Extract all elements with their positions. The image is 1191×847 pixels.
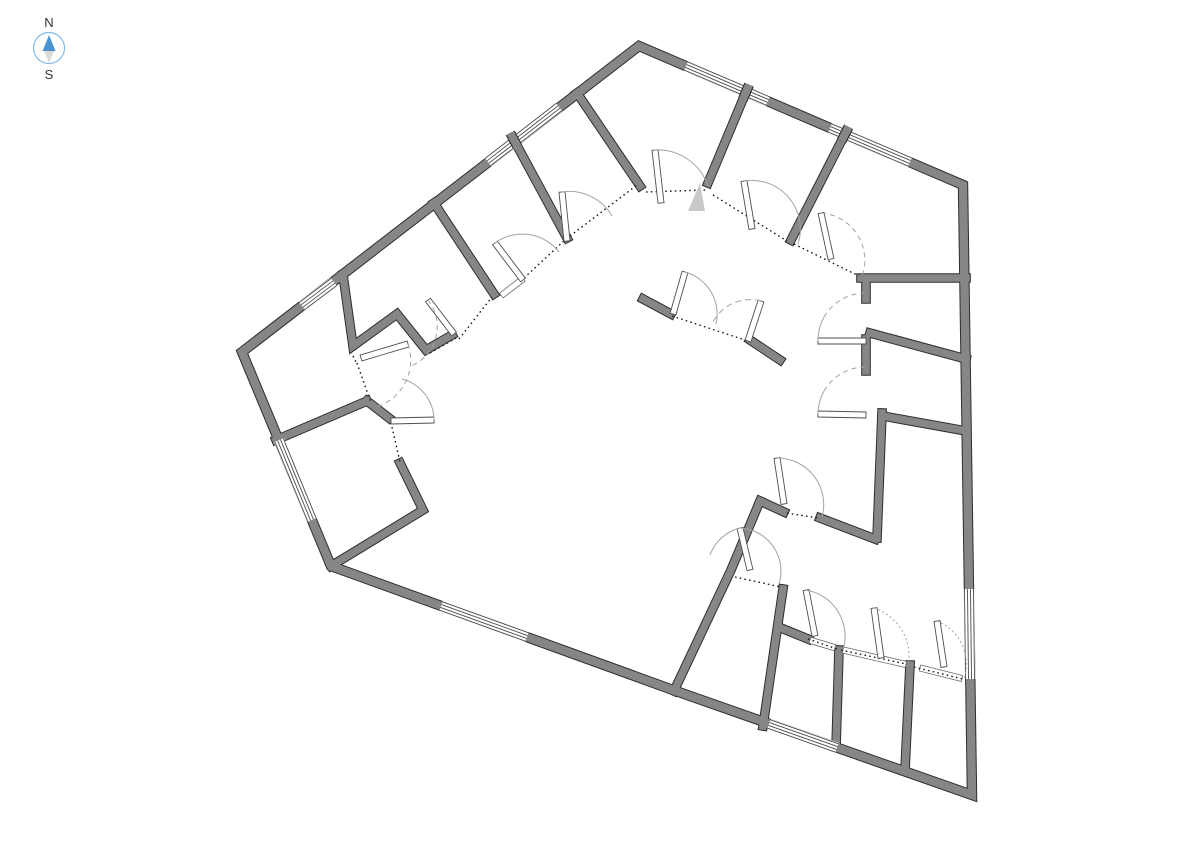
svg-text:S: S xyxy=(45,67,54,82)
svg-text:N: N xyxy=(44,15,53,30)
